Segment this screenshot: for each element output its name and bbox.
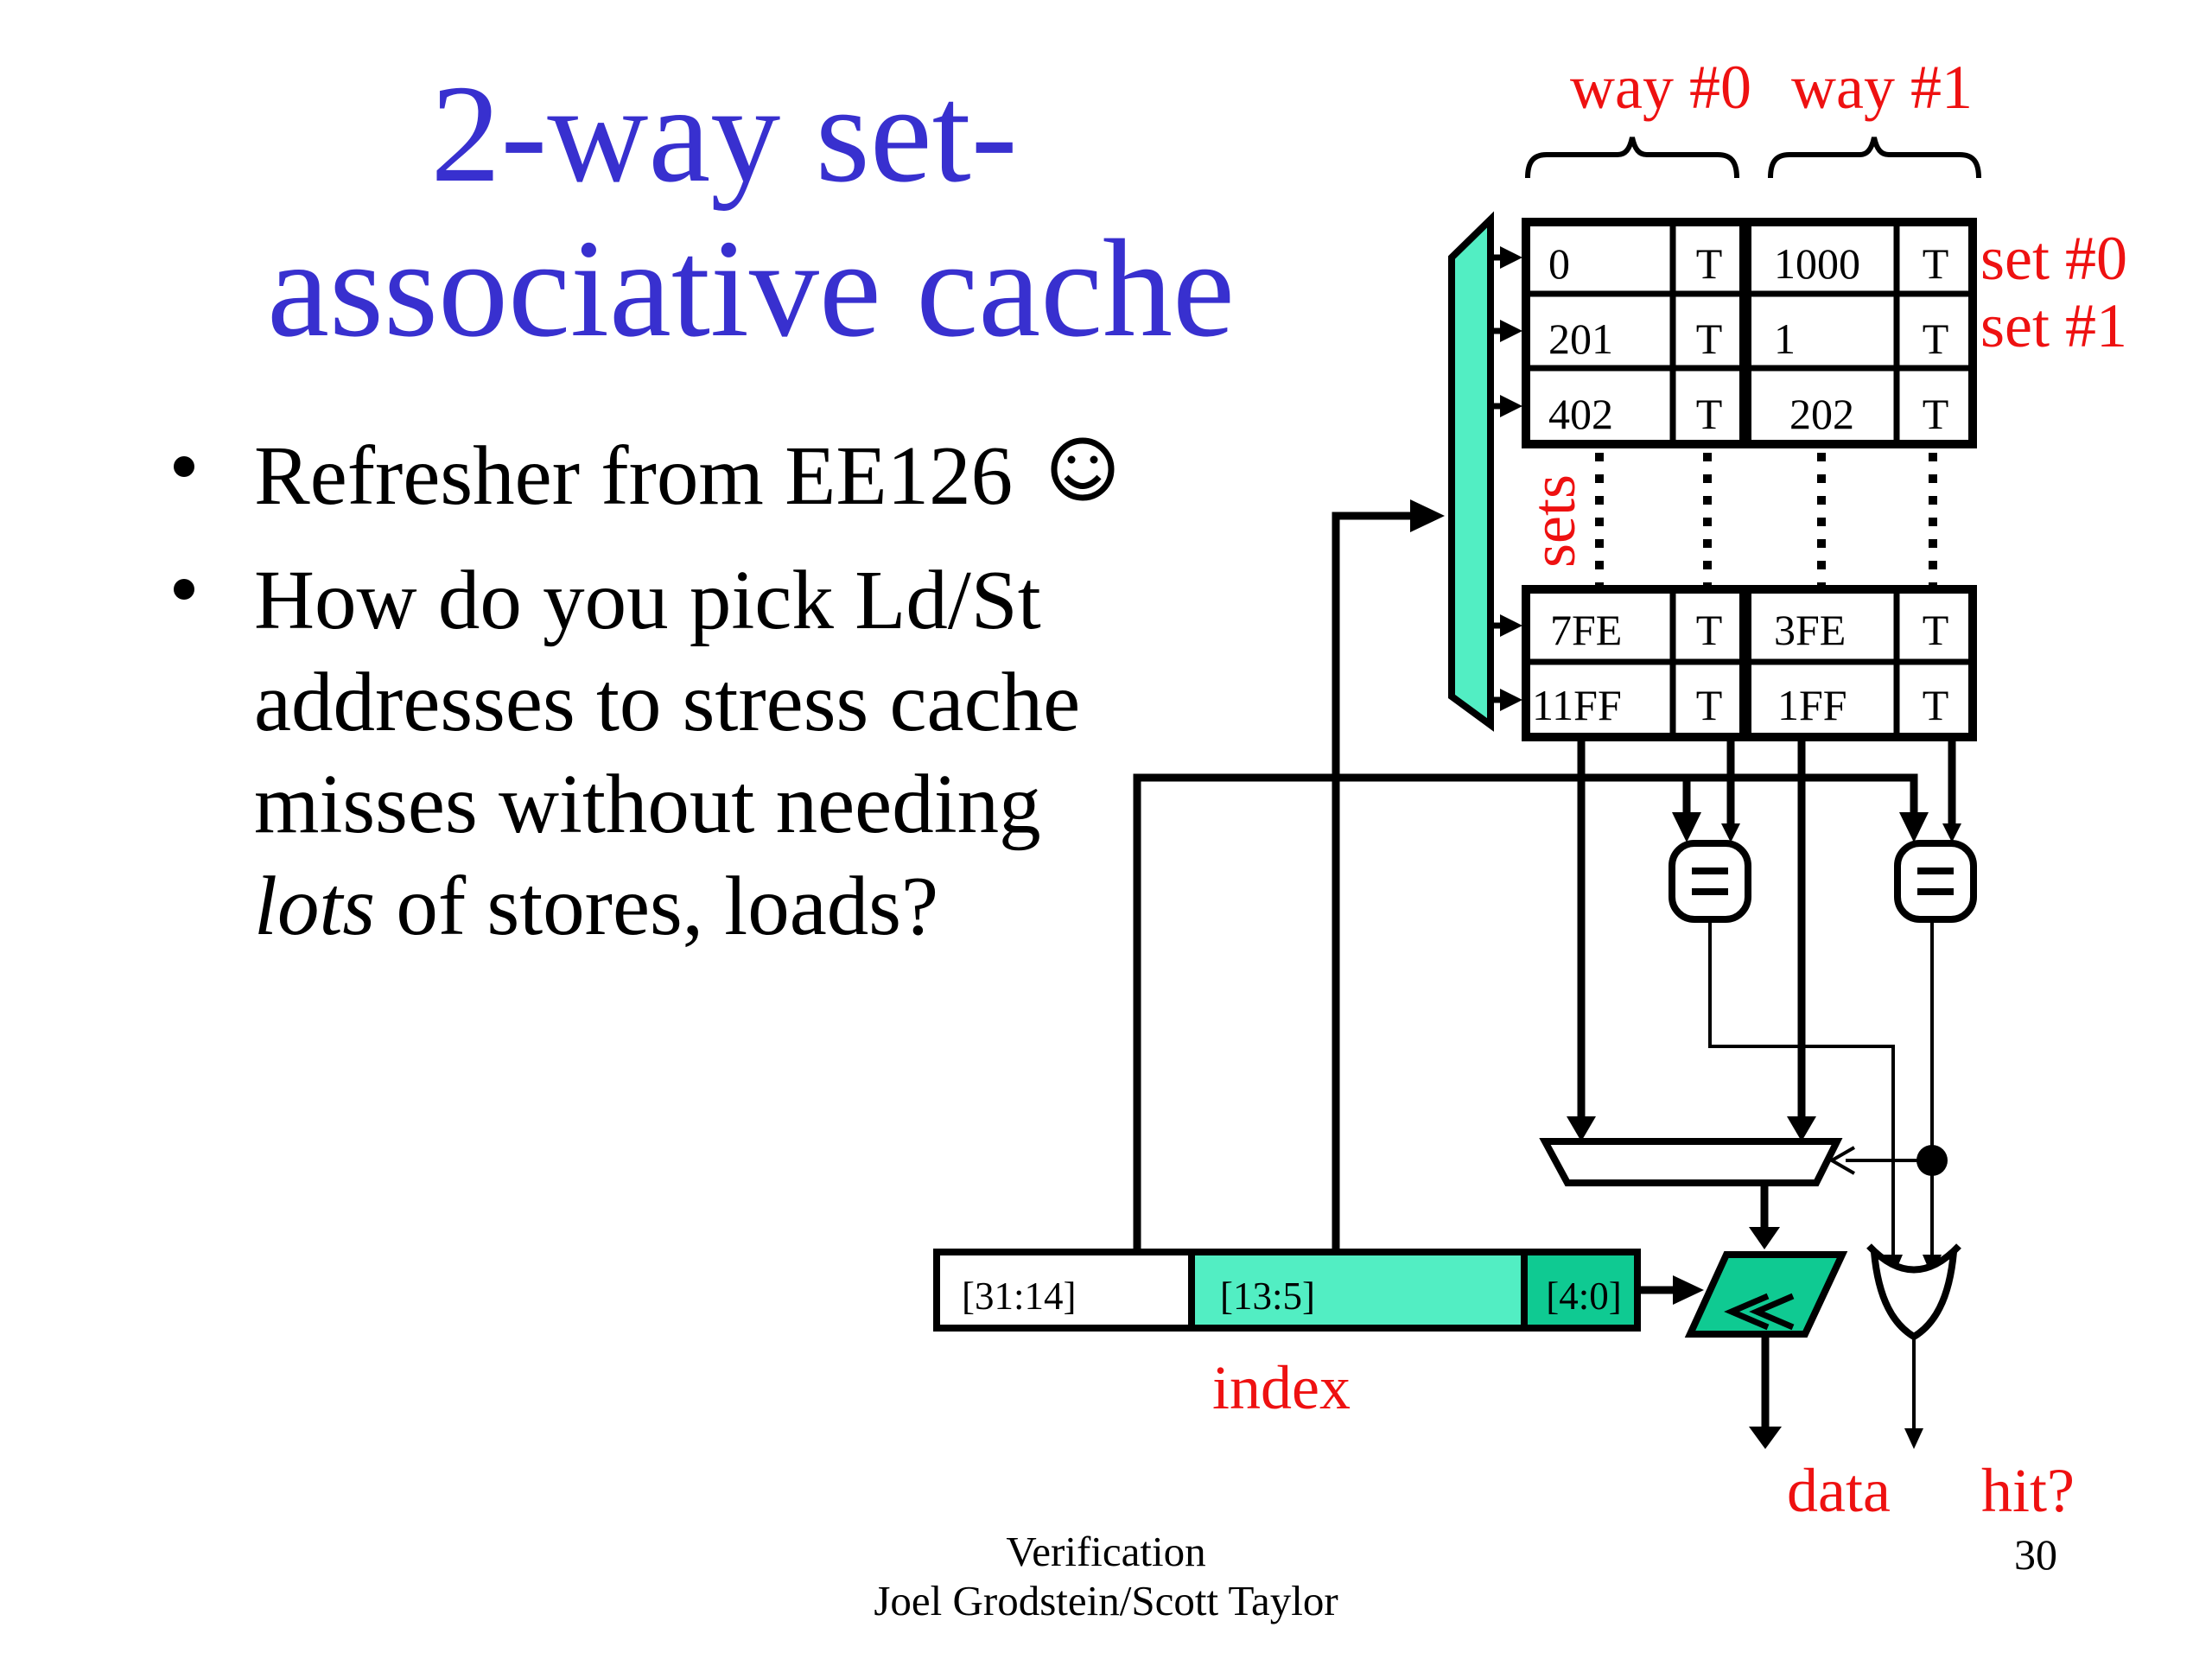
svg-text:How do you pick Ld/St: How do you pick Ld/St [254, 554, 1041, 646]
svg-text:T: T [1696, 681, 1723, 729]
svg-text:index: index [1212, 1353, 1351, 1422]
svg-text:3FE: 3FE [1774, 606, 1846, 654]
svg-text:T: T [1923, 606, 1949, 654]
svg-text:lots of stores, loads?: lots of stores, loads? [254, 860, 938, 952]
svg-text:1000: 1000 [1774, 239, 1860, 288]
svg-text:[13:5]: [13:5] [1220, 1274, 1315, 1318]
svg-text:set #0: set #0 [1980, 224, 2127, 293]
svg-text:1FF: 1FF [1777, 681, 1847, 729]
svg-text:way #0: way #0 [1570, 53, 1751, 122]
svg-text:Joel Grodstein/Scott Taylor: Joel Grodstein/Scott Taylor [874, 1577, 1338, 1624]
svg-text:hit?: hit? [1981, 1456, 2075, 1525]
svg-text:T: T [1923, 239, 1949, 288]
svg-text:T: T [1696, 315, 1723, 363]
svg-text:sets: sets [1519, 474, 1588, 568]
svg-text:1: 1 [1774, 315, 1796, 363]
svg-text:201: 201 [1548, 315, 1613, 363]
svg-text:202: 202 [1789, 390, 1854, 438]
svg-text:402: 402 [1548, 390, 1613, 438]
svg-text:[31:14]: [31:14] [962, 1274, 1076, 1318]
svg-text:Verification: Verification [1006, 1528, 1205, 1575]
svg-text:T: T [1923, 390, 1949, 438]
svg-text:7FE: 7FE [1550, 606, 1622, 654]
svg-text:T: T [1923, 681, 1949, 729]
svg-text:0: 0 [1548, 239, 1570, 288]
svg-text:11FF: 11FF [1532, 681, 1622, 729]
svg-text:way #1: way #1 [1791, 53, 1973, 122]
svg-text:T: T [1696, 606, 1723, 654]
svg-text:addresses to stress cache: addresses to stress cache [254, 656, 1080, 748]
svg-text:[4:0]: [4:0] [1546, 1274, 1621, 1318]
svg-text:2-way set-: 2-way set- [430, 57, 1017, 212]
svg-text:T: T [1696, 239, 1723, 288]
svg-text:set #1: set #1 [1980, 291, 2127, 360]
svg-text:data: data [1787, 1456, 1891, 1525]
svg-text:misses without needing: misses without needing [254, 758, 1041, 850]
svg-text:T: T [1696, 390, 1723, 438]
svg-text:30: 30 [2014, 1530, 2057, 1579]
svg-text:associative cache: associative cache [267, 212, 1235, 366]
svg-text:T: T [1923, 315, 1949, 363]
svg-text:Refresher from EE126: Refresher from EE126 [254, 429, 1013, 522]
